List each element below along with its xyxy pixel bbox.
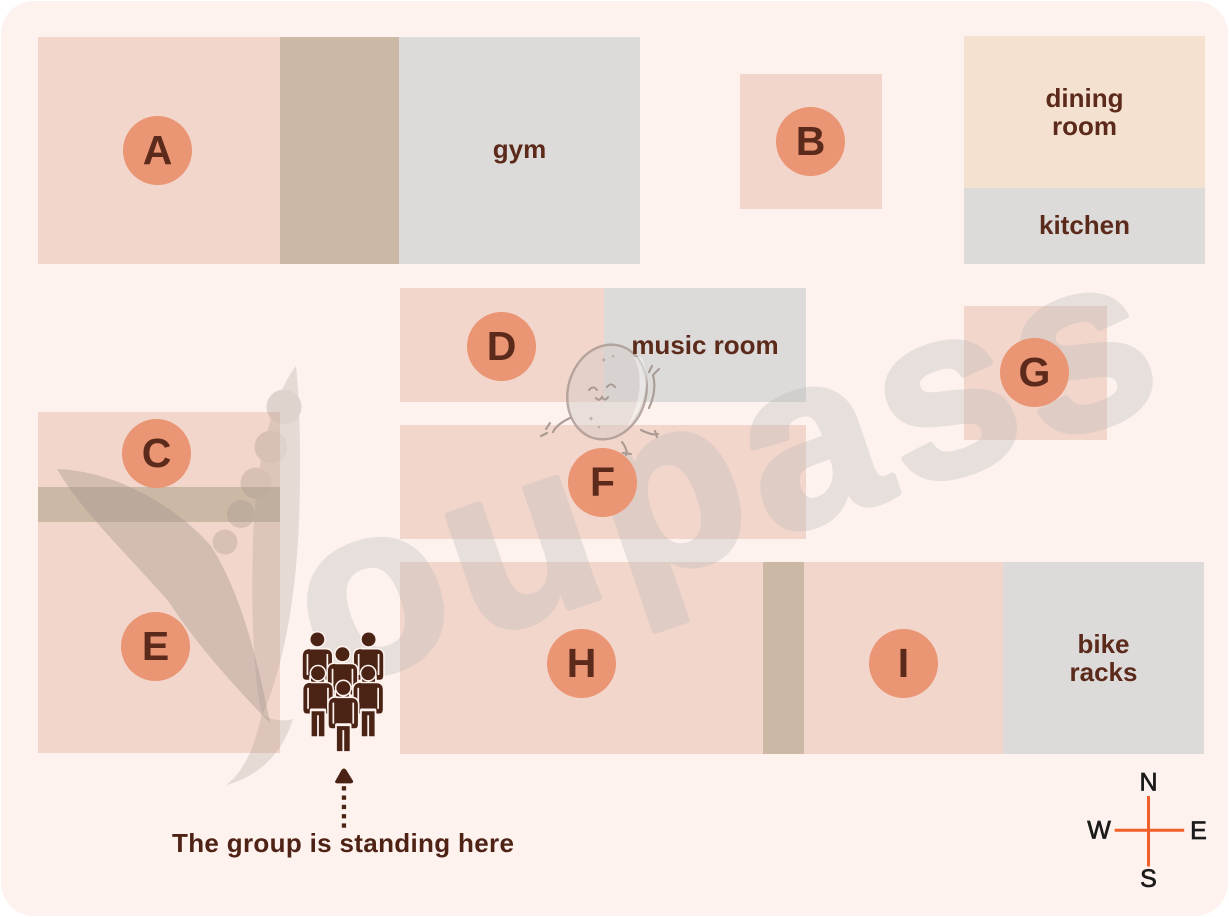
svg-text:S: S <box>1140 865 1157 893</box>
svg-text:E: E <box>1190 817 1207 845</box>
svg-text:W: W <box>1087 817 1111 845</box>
svg-text:N: N <box>1139 769 1157 797</box>
